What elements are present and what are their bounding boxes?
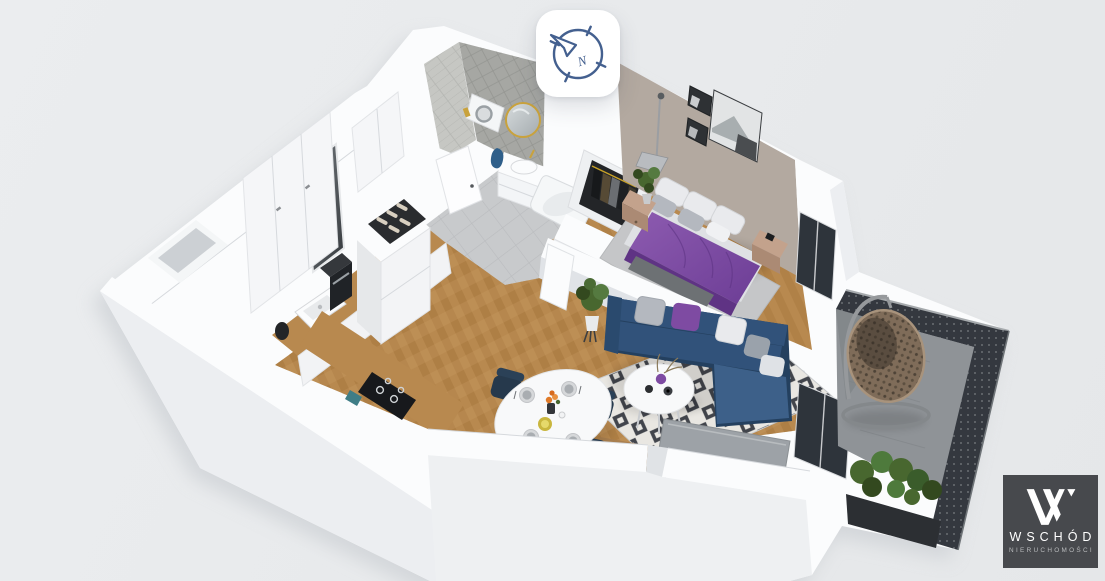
compass-cardinal-label: N [575,52,590,69]
logo-tagline: NIERUCHOMOŚCI [1007,547,1094,554]
black-jar [275,322,289,340]
plate [520,388,535,403]
purple-vase [656,374,666,384]
logo-w-mark [1025,489,1077,525]
logo-brand-text: WSCHÓD [1005,530,1097,544]
plate [562,382,577,397]
watermark-logo: WSCHÓD NIERUCHOMOŚCI [1003,475,1098,568]
compass-button[interactable]: N [536,10,620,97]
bathroom-mirror [506,103,540,137]
floorplan-viewer: N WSCHÓD NIERUCHOMOŚCI [0,0,1105,581]
compass-icon: N [547,23,609,85]
